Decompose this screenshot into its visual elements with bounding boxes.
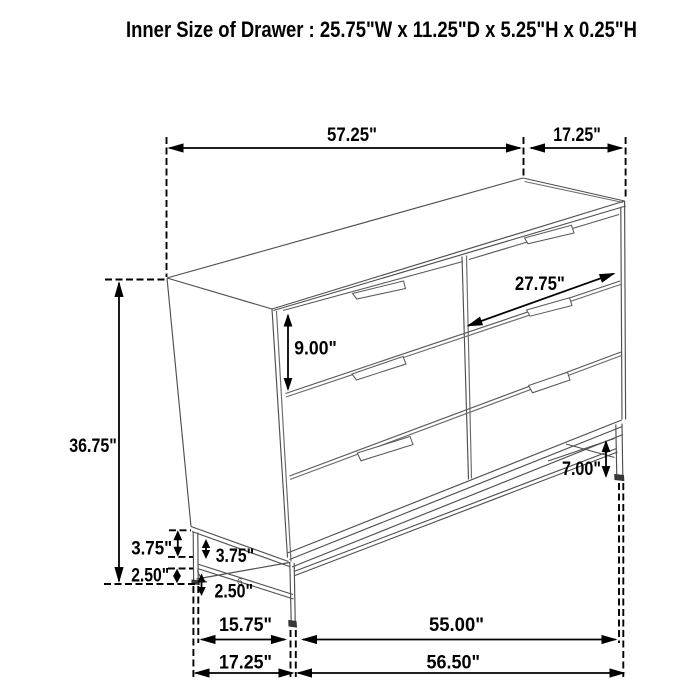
svg-text:57.25": 57.25" [327, 125, 377, 146]
svg-text:7.00": 7.00" [562, 459, 601, 480]
svg-text:2.50": 2.50" [215, 582, 254, 603]
svg-text:Inner Size of Drawer : 25.75"W: Inner Size of Drawer : 25.75"W x 11.25"D… [126, 17, 637, 42]
svg-text:15.75": 15.75" [219, 615, 272, 636]
svg-text:3.75": 3.75" [216, 546, 255, 567]
svg-text:55.00": 55.00" [429, 615, 484, 636]
svg-text:9.00": 9.00" [294, 339, 337, 360]
svg-text:17.25": 17.25" [219, 653, 272, 674]
svg-text:2.50": 2.50" [131, 566, 169, 587]
svg-text:3.75": 3.75" [131, 539, 172, 560]
svg-text:17.25": 17.25" [553, 125, 601, 146]
svg-text:36.75": 36.75" [69, 436, 117, 457]
svg-text:56.50": 56.50" [427, 653, 481, 674]
svg-text:27.75": 27.75" [515, 274, 565, 295]
